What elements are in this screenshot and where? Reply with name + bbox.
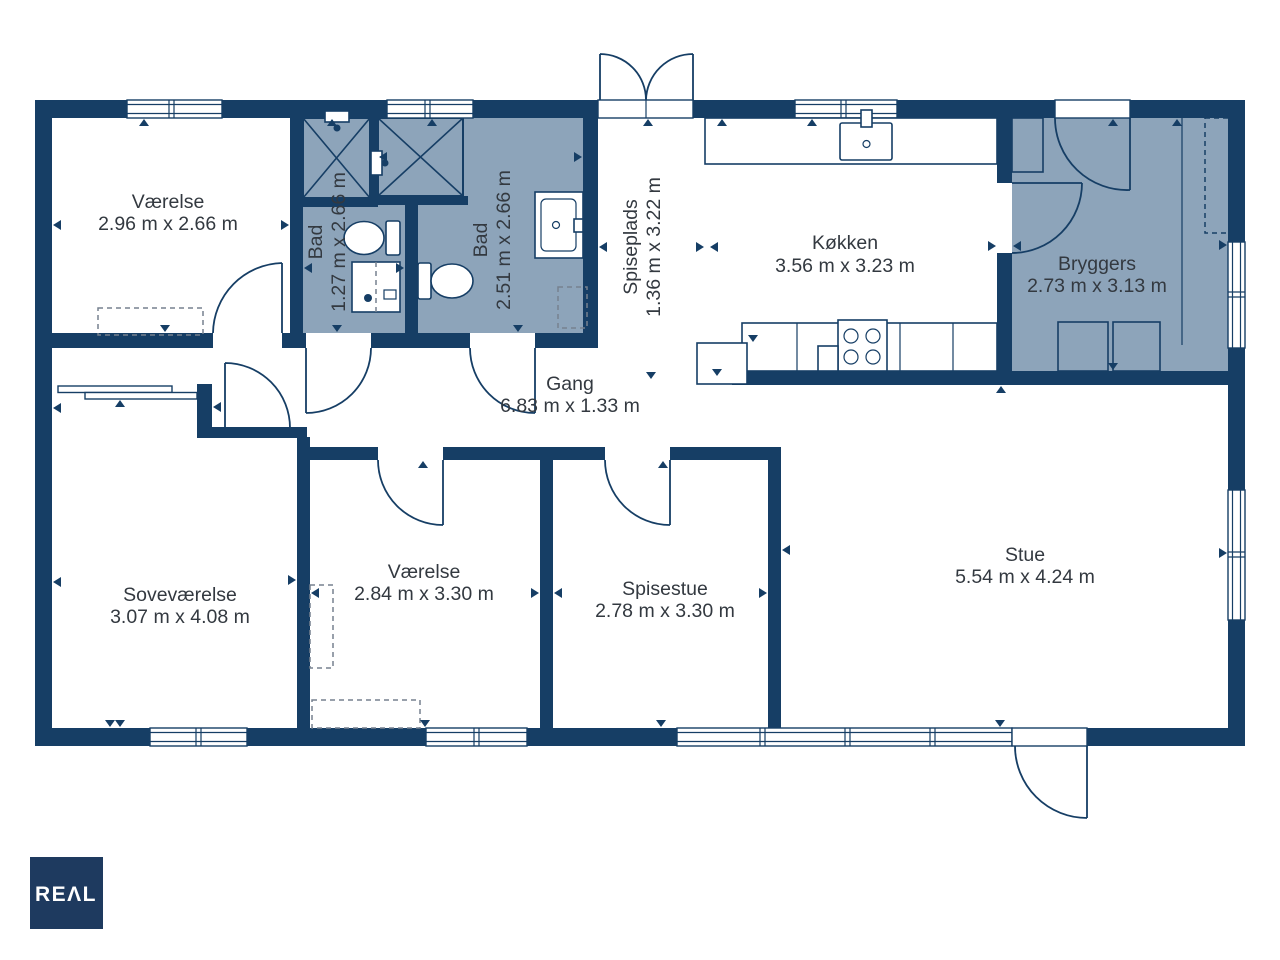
svg-text:1.27 m x 2.66 m: 1.27 m x 2.66 m [328, 172, 350, 312]
svg-text:Gang: Gang [546, 373, 594, 395]
svg-text:1.36 m x 3.22 m: 1.36 m x 3.22 m [643, 177, 665, 317]
svg-text:Bad: Bad [305, 225, 327, 260]
floor-plan: Værelse 2.96 m x 2.66 m Bad 1.27 m x 2.6… [0, 0, 1280, 960]
svg-text:2.96 m x 2.66 m: 2.96 m x 2.66 m [98, 213, 238, 235]
svg-text:2.78 m x 3.30 m: 2.78 m x 3.30 m [595, 600, 735, 622]
hall-cabinet [697, 343, 747, 384]
real-logo: REΛL [30, 857, 103, 929]
toilet-icon [344, 221, 400, 255]
room-label-sovevaerelse: Soveværelse 3.07 m x 4.08 m [110, 584, 250, 628]
svg-text:2.73 m x 3.13 m: 2.73 m x 3.13 m [1027, 275, 1167, 297]
window [795, 100, 897, 118]
svg-text:Spiseplads: Spiseplads [620, 199, 642, 295]
sink-icon [535, 192, 583, 258]
washing-machine-icon [352, 262, 400, 312]
utility-shelf [1012, 118, 1043, 172]
window [1228, 242, 1245, 348]
utility-door-opening [1055, 100, 1130, 118]
svg-text:Spisestue: Spisestue [622, 578, 708, 600]
window [677, 728, 1012, 746]
svg-text:Soveværelse: Soveværelse [123, 584, 237, 606]
svg-text:2.51 m x 2.66 m: 2.51 m x 2.66 m [493, 170, 515, 310]
window [387, 100, 473, 118]
utility-counter [1058, 322, 1108, 371]
utility-counter [1113, 322, 1160, 371]
window [127, 100, 222, 118]
window [150, 728, 247, 746]
toilet-icon [418, 263, 473, 299]
svg-text:Værelse: Værelse [132, 191, 205, 213]
logo-text: REΛL [35, 883, 97, 906]
svg-text:Bad: Bad [470, 223, 492, 258]
svg-text:Bryggers: Bryggers [1058, 253, 1136, 275]
svg-text:3.07 m x 4.08 m: 3.07 m x 4.08 m [110, 606, 250, 628]
svg-text:Værelse: Værelse [388, 561, 461, 583]
svg-text:Stue: Stue [1005, 544, 1045, 566]
svg-text:6.83 m x 1.33 m: 6.83 m x 1.33 m [500, 395, 640, 417]
window [1228, 490, 1245, 620]
svg-text:Køkken: Køkken [812, 232, 878, 254]
shower-icon [378, 118, 463, 196]
window [426, 728, 527, 746]
svg-text:2.84 m x 3.30 m: 2.84 m x 3.30 m [354, 583, 494, 605]
svg-text:5.54 m x 4.24 m: 5.54 m x 4.24 m [955, 566, 1095, 588]
svg-text:3.56 m x 3.23 m: 3.56 m x 3.23 m [775, 255, 915, 277]
